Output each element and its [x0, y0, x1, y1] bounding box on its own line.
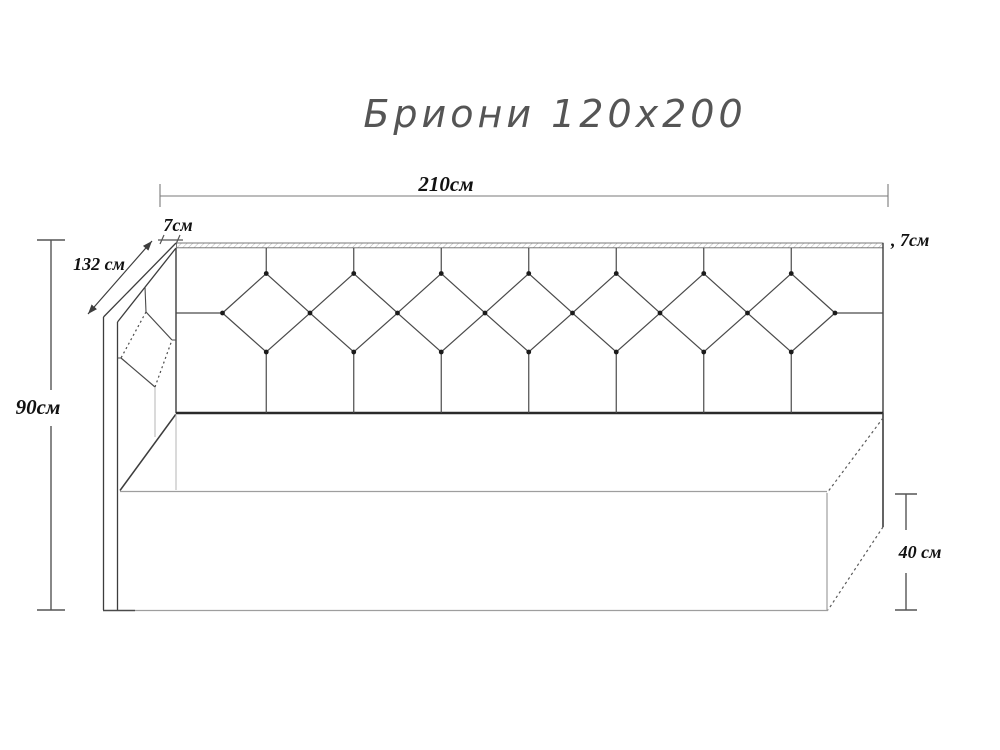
side-panel-diamond — [118, 287, 177, 437]
dim-label-side-depth: 132 см — [73, 254, 125, 274]
dim-label-rail-right: , 7см — [890, 230, 929, 250]
drawing-canvas: Бриони 120x200 210см 7см , 7см 132 см 90… — [0, 0, 1000, 750]
dim-label-base-height: 40 см — [898, 542, 942, 562]
side-panel — [104, 243, 177, 610]
dim-label-rail-left: 7см — [163, 215, 192, 235]
drawing-title: Бриони 120x200 — [363, 92, 746, 136]
base-box — [103, 413, 883, 611]
headboard-outline — [176, 243, 883, 413]
headboard-top-rail — [177, 243, 884, 248]
tufting-buttons — [220, 271, 837, 354]
dimension-total-width — [160, 184, 888, 207]
dim-label-headboard-height: 90см — [16, 395, 61, 419]
dim-label-total-width: 210см — [417, 172, 473, 196]
dimension-headboard-height — [37, 240, 65, 610]
bed-dimension-drawing: Бриони 120x200 210см 7см , 7см 132 см 90… — [0, 0, 1000, 750]
